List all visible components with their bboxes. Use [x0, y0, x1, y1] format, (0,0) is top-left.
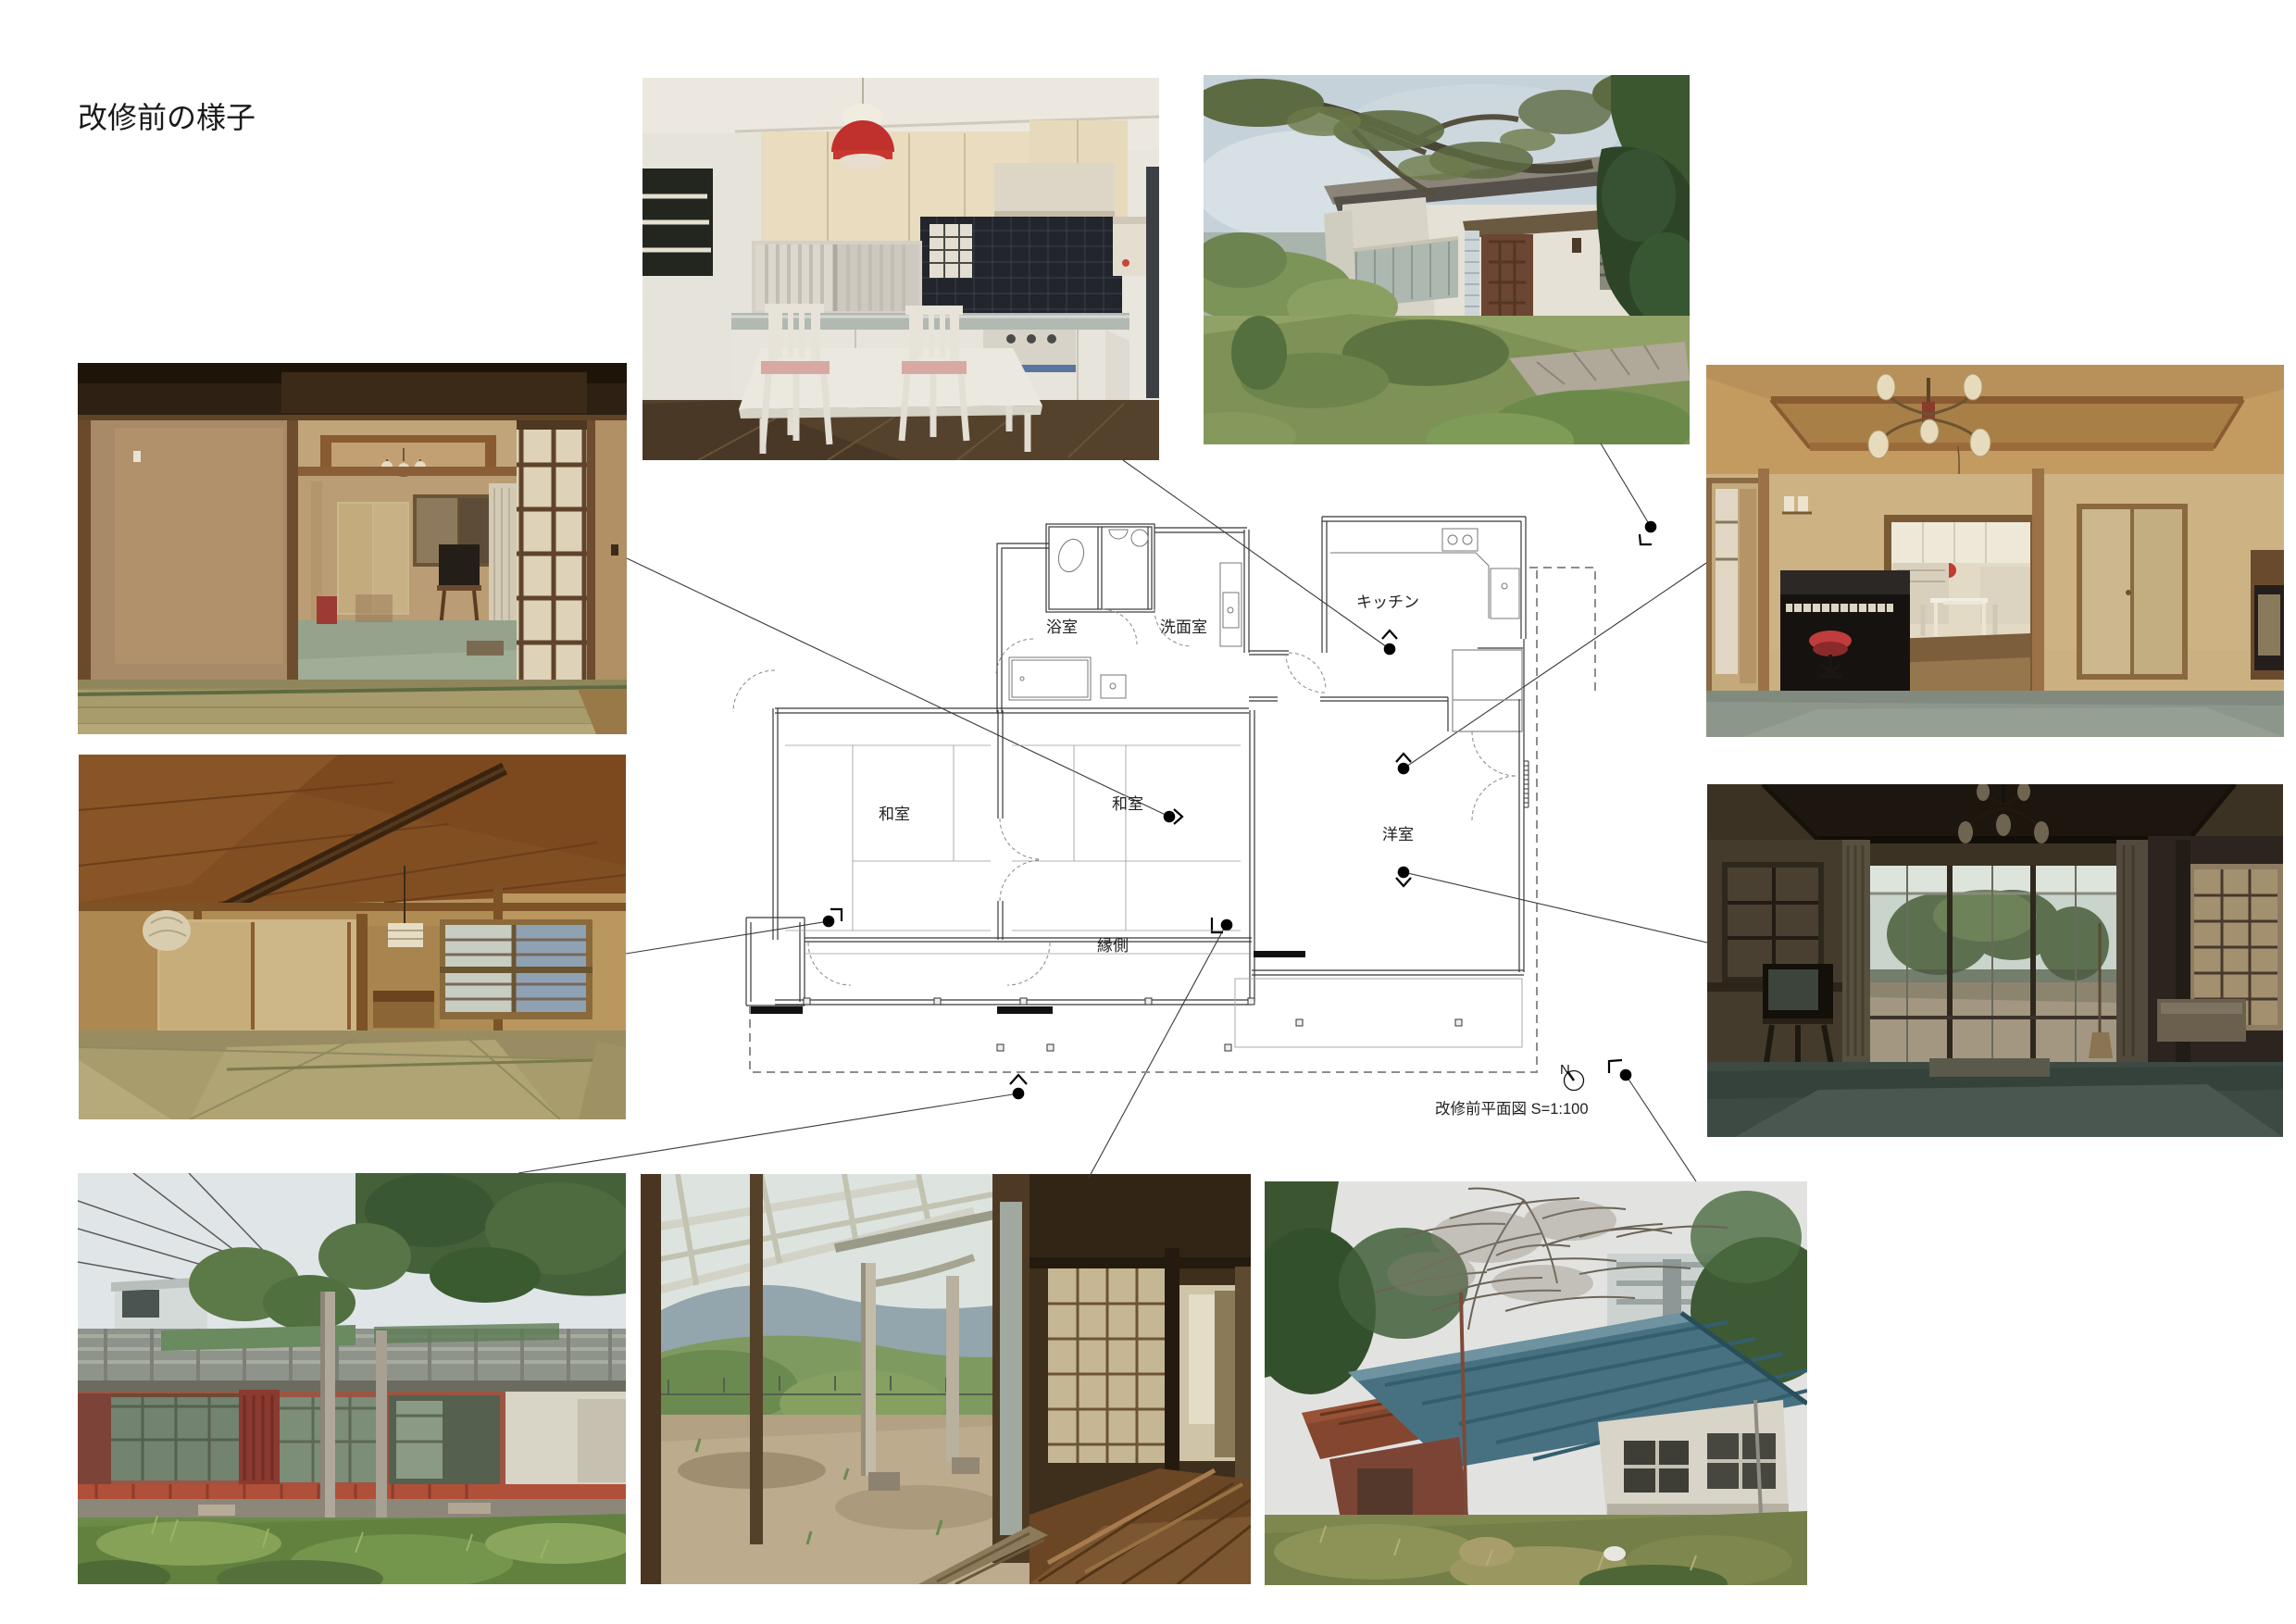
- svg-text:和室: 和室: [879, 806, 910, 823]
- svg-text:浴室: 浴室: [1046, 618, 1078, 636]
- svg-text:改修前平面図 S=1:100: 改修前平面図 S=1:100: [1435, 1100, 1589, 1118]
- svg-text:和室: 和室: [1112, 795, 1143, 813]
- svg-text:洋室: 洋室: [1382, 826, 1414, 843]
- svg-text:洗面室: 洗面室: [1160, 618, 1207, 636]
- svg-text:キッチン: キッチン: [1356, 593, 1419, 611]
- svg-text:縁側: 縁側: [1097, 937, 1129, 955]
